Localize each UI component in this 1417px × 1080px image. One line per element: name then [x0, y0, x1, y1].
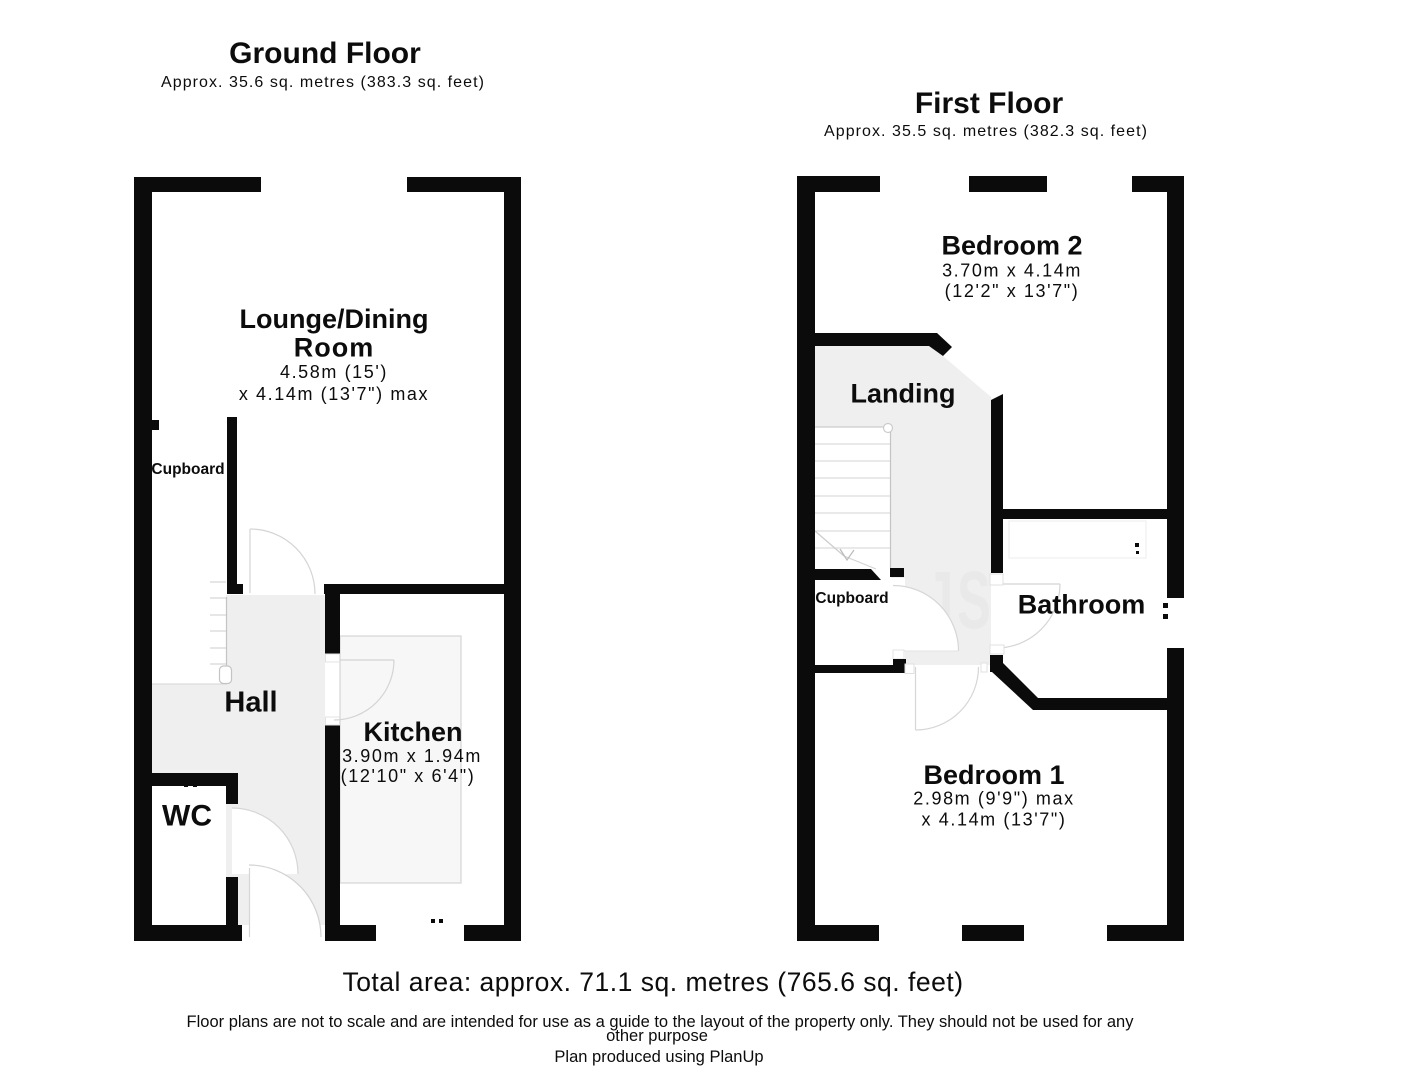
svg-text:x 4.14m (13'7") max: x 4.14m (13'7") max: [239, 384, 429, 404]
svg-text:Approx. 35.6 sq. metres (383.3: Approx. 35.6 sq. metres (383.3 sq. feet): [161, 74, 485, 91]
svg-text:4.58m (15'): 4.58m (15'): [280, 362, 388, 382]
svg-text:Ground Floor: Ground Floor: [229, 37, 421, 70]
svg-text:Landing: Landing: [851, 379, 956, 409]
svg-text:(12'2" x 13'7"): (12'2" x 13'7"): [945, 281, 1080, 301]
svg-text:First Floor: First Floor: [915, 87, 1064, 120]
svg-text:(12'10" x 6'4"): (12'10" x 6'4"): [341, 766, 476, 786]
svg-text:2.98m (9'9") max: 2.98m (9'9") max: [913, 789, 1074, 809]
svg-text:Plan produced using PlanUp: Plan produced using PlanUp: [554, 1048, 763, 1066]
svg-text:Cupboard: Cupboard: [815, 590, 888, 607]
svg-text:Lounge/Dining: Lounge/Dining: [240, 304, 429, 334]
svg-text:3.70m x 4.14m: 3.70m x 4.14m: [942, 261, 1082, 281]
svg-text:Bedroom 2: Bedroom 2: [941, 231, 1082, 261]
svg-text:Cupboard: Cupboard: [151, 461, 224, 478]
svg-text:WC: WC: [162, 800, 212, 833]
svg-text:Hall: Hall: [224, 687, 277, 719]
svg-text:3.90m x 1.94m: 3.90m x 1.94m: [342, 746, 482, 766]
svg-text:Total area: approx. 71.1 sq. m: Total area: approx. 71.1 sq. metres (765…: [342, 967, 963, 997]
svg-text:Bathroom: Bathroom: [1018, 590, 1146, 620]
svg-text:x 4.14m (13'7"): x 4.14m (13'7"): [922, 810, 1067, 830]
svg-text:Room: Room: [294, 333, 375, 363]
svg-text:other purpose: other purpose: [606, 1027, 708, 1045]
svg-text:Approx. 35.5 sq. metres (382.3: Approx. 35.5 sq. metres (382.3 sq. feet): [824, 123, 1148, 140]
svg-text:Kitchen: Kitchen: [363, 717, 462, 747]
svg-text:Bedroom 1: Bedroom 1: [923, 760, 1064, 790]
